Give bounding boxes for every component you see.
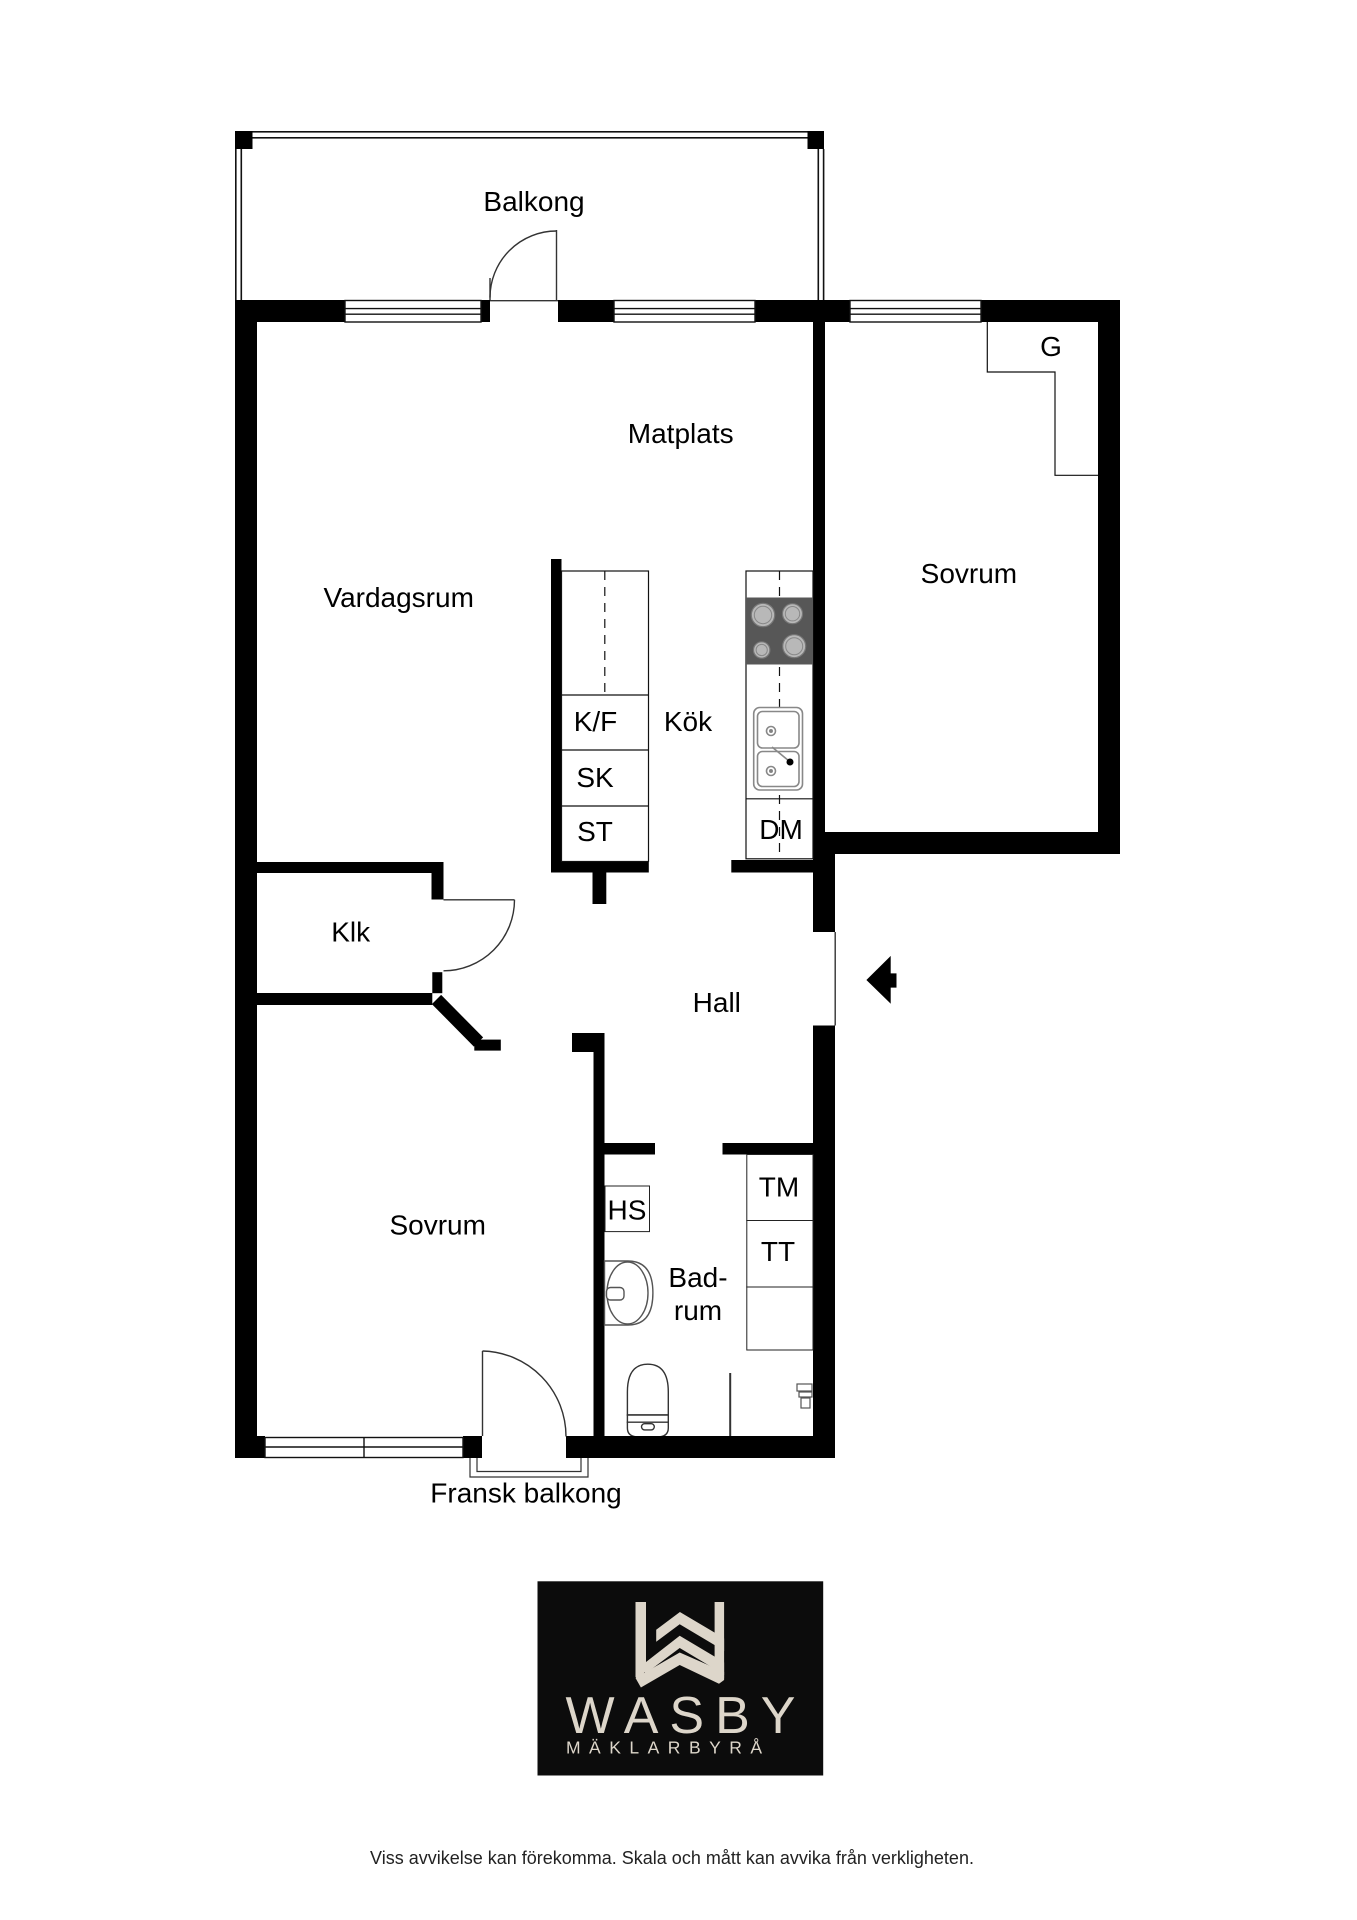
svg-text:TM: TM xyxy=(759,1172,799,1203)
svg-text:TT: TT xyxy=(761,1236,795,1267)
svg-text:Matplats: Matplats xyxy=(628,418,734,449)
svg-text:Klk: Klk xyxy=(331,917,371,948)
svg-text:Balkong: Balkong xyxy=(483,186,584,217)
svg-text:ST: ST xyxy=(577,816,613,847)
svg-text:G: G xyxy=(1040,331,1062,362)
svg-text:rum: rum xyxy=(674,1295,722,1326)
svg-text:Viss avvikelse kan förekomma.: Viss avvikelse kan förekomma. Skala och … xyxy=(370,1848,974,1868)
svg-text:Vardagsrum: Vardagsrum xyxy=(323,582,473,613)
svg-text:DM: DM xyxy=(759,814,803,845)
svg-text:Hall: Hall xyxy=(693,987,741,1018)
svg-text:HS: HS xyxy=(608,1195,647,1226)
svg-text:Sovrum: Sovrum xyxy=(389,1210,485,1241)
svg-text:K/F: K/F xyxy=(574,706,618,737)
svg-text:Sovrum: Sovrum xyxy=(921,558,1017,589)
svg-text:WASBY: WASBY xyxy=(566,1687,807,1745)
svg-text:Kök: Kök xyxy=(664,706,713,737)
svg-text:MÄKLARBYRÅ: MÄKLARBYRÅ xyxy=(566,1738,771,1758)
svg-text:Bad-: Bad- xyxy=(668,1262,727,1293)
svg-text:SK: SK xyxy=(576,762,614,793)
svg-text:Fransk balkong: Fransk balkong xyxy=(430,1478,621,1509)
